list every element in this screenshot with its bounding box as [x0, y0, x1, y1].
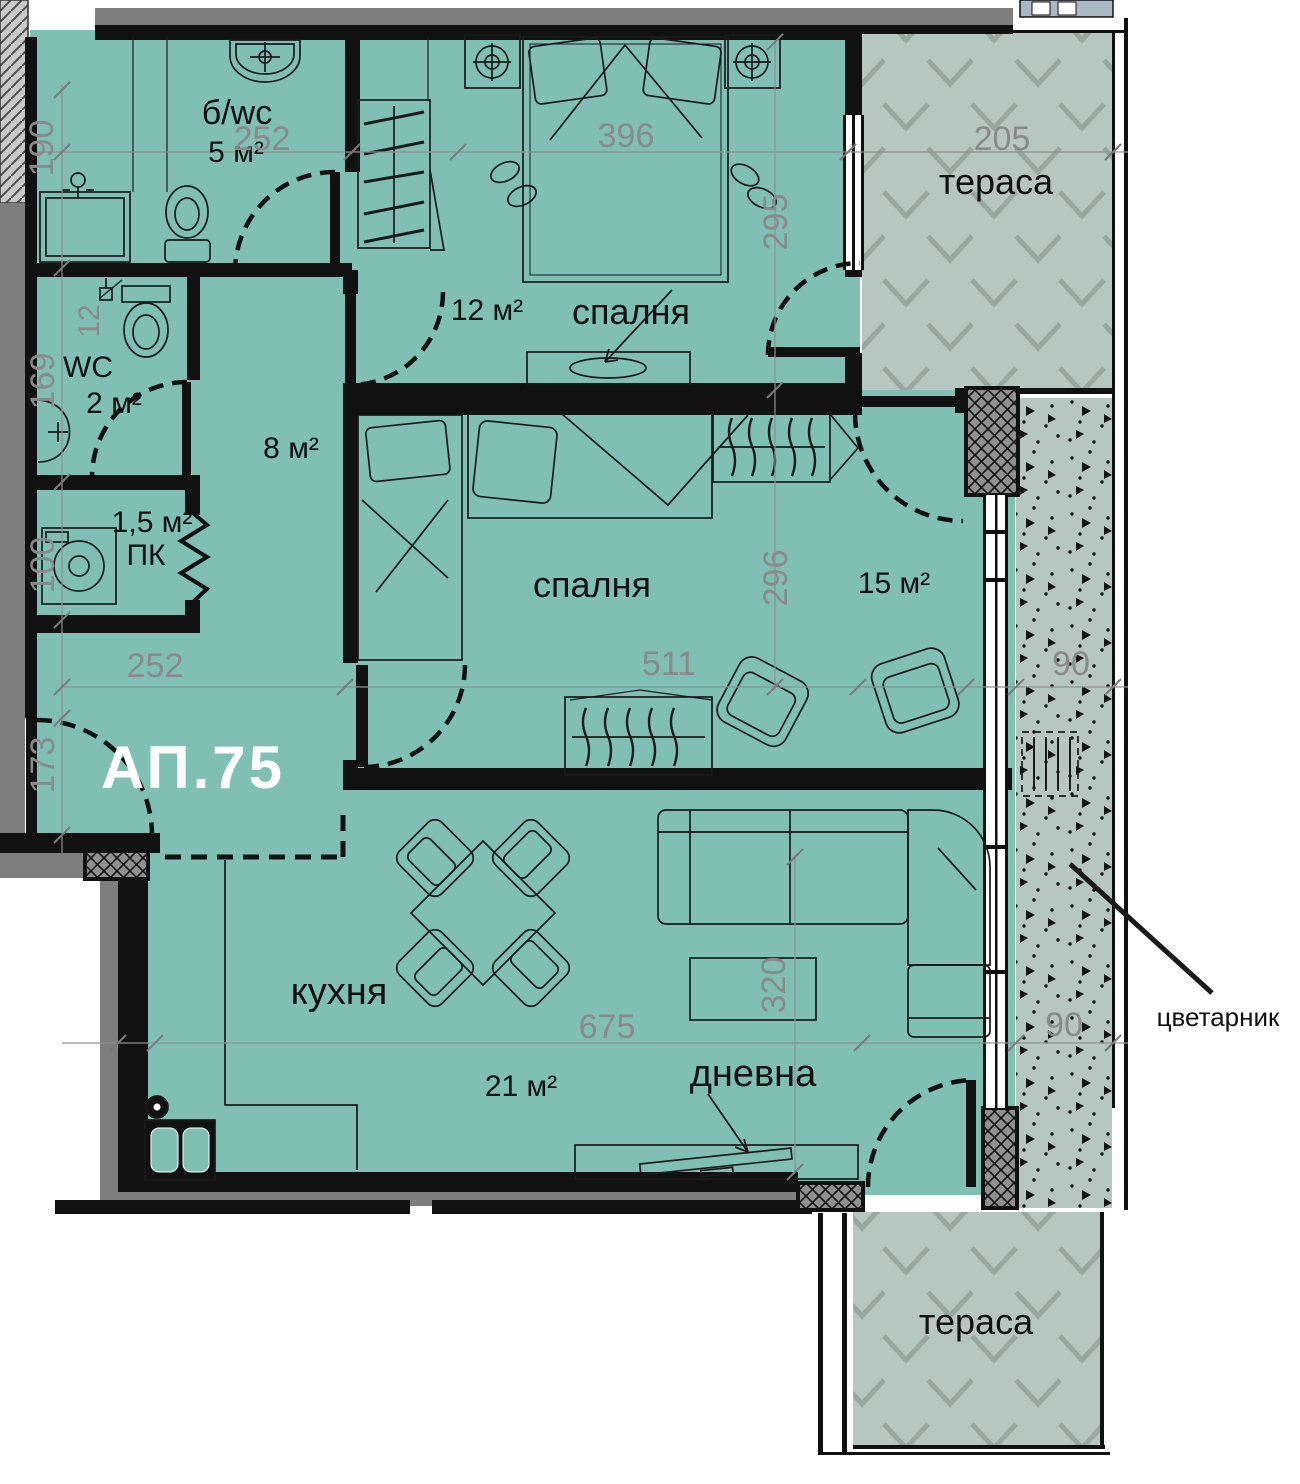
- floor-plan: б/wc 5 м² WC 2 м² 8 м² 1,5 м² ПК 12 м² с…: [0, 0, 1300, 1484]
- bathroom-door-leaf: [330, 172, 340, 272]
- room-label-storage: ПК: [126, 541, 165, 571]
- area-label-hall: 8 м²: [263, 434, 319, 464]
- dim-90-bottom: 90: [1045, 1008, 1083, 1042]
- area-label-wc: 2 м²: [86, 389, 142, 419]
- area-label-bedroom1: 12 м²: [451, 296, 523, 326]
- dim-295: 295: [759, 194, 793, 251]
- bedroom1-door-leaf: [345, 292, 356, 385]
- bedroom2-terrace-door-leaf: [858, 396, 956, 407]
- dim-252-top: 252: [234, 122, 291, 156]
- dim-511: 511: [642, 647, 696, 681]
- area-label-living-kitchen: 21 м²: [485, 1072, 557, 1102]
- apartment-number: АП.75: [101, 738, 285, 798]
- dim-675: 675: [579, 1010, 636, 1044]
- wc-door-leaf: [182, 382, 191, 477]
- dim-296: 296: [759, 550, 793, 607]
- dim-12: 12: [75, 304, 105, 337]
- living-terrace-door-leaf: [966, 1080, 976, 1187]
- area-label-bedroom2: 15 м²: [858, 569, 930, 599]
- area-label-storage: 1,5 м²: [112, 508, 193, 538]
- room-label-bedroom2: спалня: [533, 567, 651, 603]
- room-label-living: дневна: [690, 1055, 817, 1093]
- dim-190: 190: [25, 120, 59, 177]
- room-label-kitchen: кухня: [291, 973, 388, 1011]
- room-label-bedroom1: спалня: [572, 294, 690, 330]
- dim-100: 100: [26, 537, 60, 594]
- bedroom2-door-leaf: [356, 665, 368, 767]
- dim-205: 205: [974, 122, 1031, 156]
- room-label-wc: WC: [63, 353, 113, 383]
- dim-252-bottom: 252: [127, 649, 184, 683]
- room-label-terrace-bottom: тераса: [919, 1304, 1033, 1340]
- bedroom1-terrace-door-leaf: [768, 347, 860, 357]
- dim-173: 173: [26, 737, 60, 794]
- label-flower-box: цветарник: [1157, 1004, 1280, 1030]
- room-label-terrace-top: тераса: [939, 164, 1053, 200]
- dim-320: 320: [757, 957, 791, 1014]
- dim-169: 169: [26, 353, 60, 410]
- dim-90-middle: 90: [1052, 647, 1090, 681]
- dim-396: 396: [598, 119, 655, 153]
